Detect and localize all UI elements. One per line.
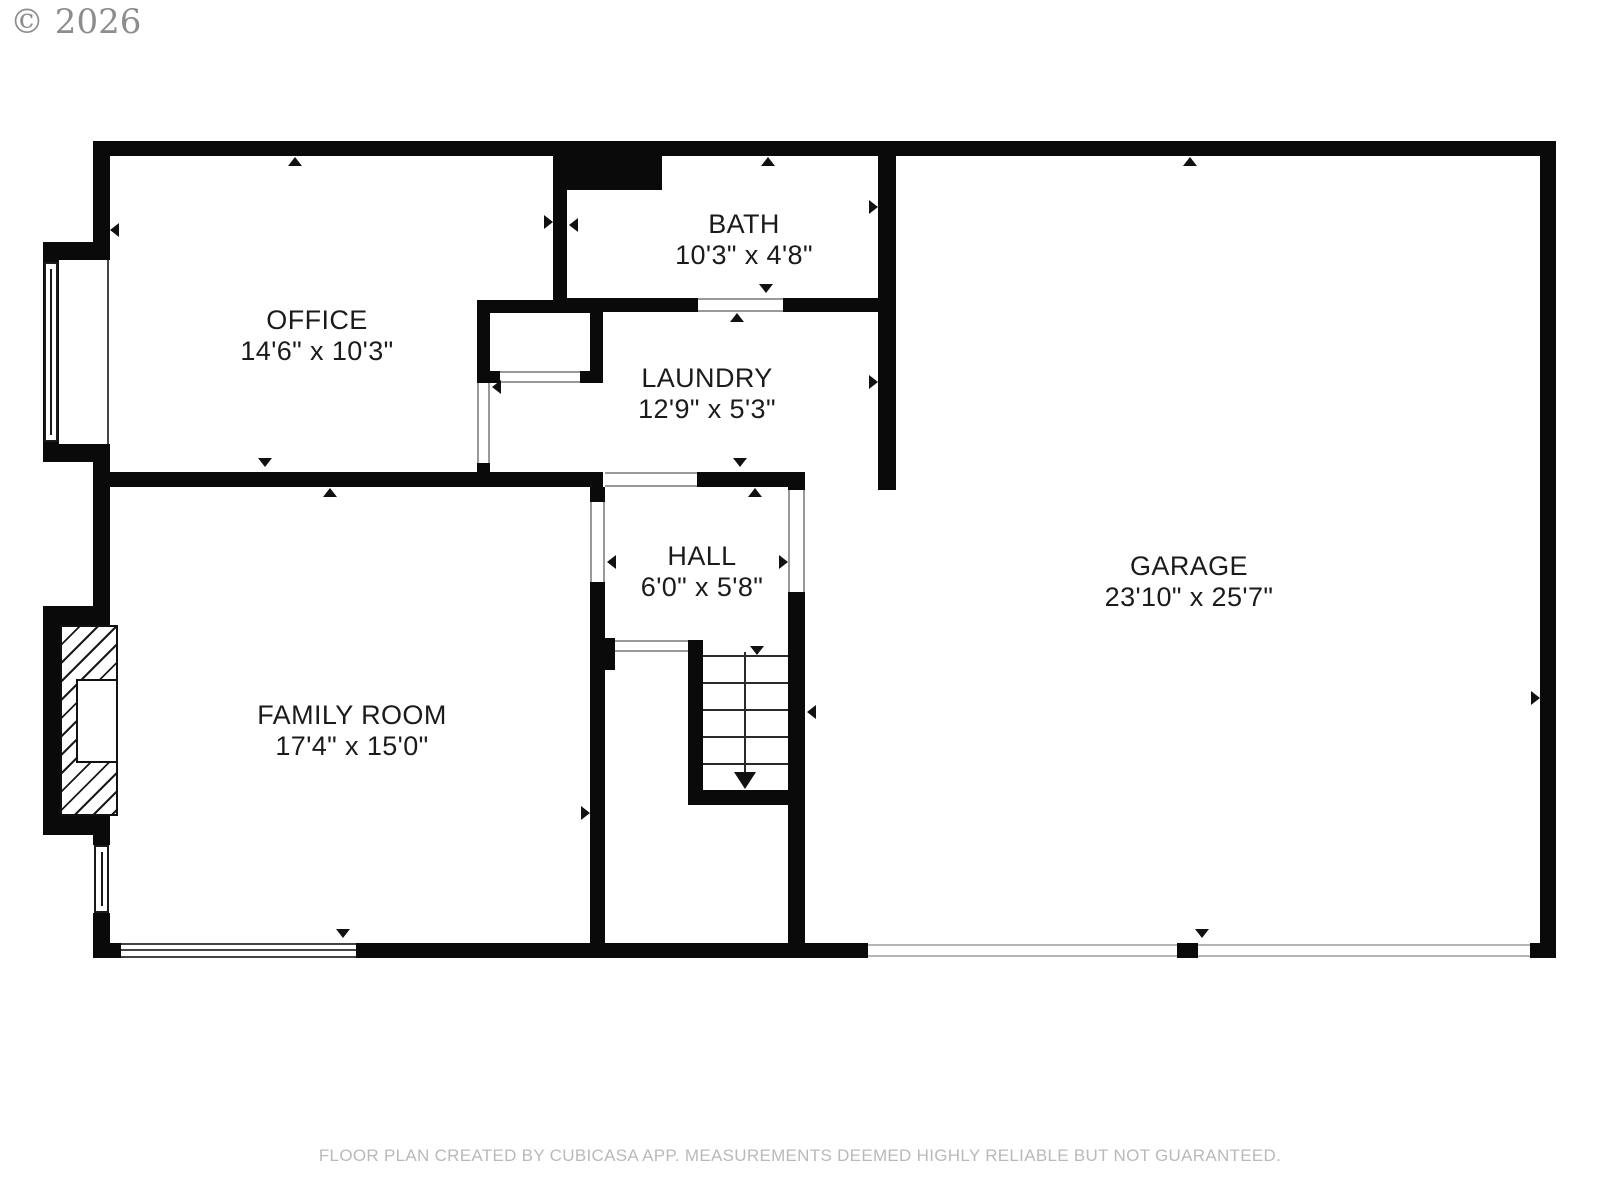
window-cap <box>112 943 121 958</box>
stair-direction-line <box>744 652 746 776</box>
garage-door-opening <box>868 944 1177 957</box>
garage-door-opening <box>1198 944 1530 957</box>
measure-arrow-bath-left <box>569 218 578 232</box>
measure-arrow-garage-bottom <box>1195 929 1209 938</box>
measure-arrow-office-left <box>110 223 119 237</box>
room-name: BATH <box>675 209 813 240</box>
window-glazing-line <box>50 269 52 435</box>
footer-disclaimer: FLOOR PLAN CREATED BY CUBICASA APP. MEAS… <box>0 1146 1600 1166</box>
measure-arrow-laundry-bottom <box>733 458 747 467</box>
door-familyroom-hall <box>590 502 605 582</box>
room-label-office: OFFICE 14'6" x 10'3" <box>240 305 393 367</box>
wall-garage-left <box>788 592 805 943</box>
room-dimensions: 14'6" x 10'3" <box>240 336 393 367</box>
room-label-garage: GARAGE 23'10" x 25'7" <box>1105 551 1274 613</box>
measure-arrow-familyroom-right <box>581 806 590 820</box>
room-dimensions: 12'9" x 5'3" <box>638 394 776 425</box>
room-dimensions: 6'0" x 5'8" <box>641 572 763 603</box>
wall-outer-top <box>93 141 1556 156</box>
room-dimensions: 17'4" x 15'0" <box>257 731 446 762</box>
closet-door-jamb <box>580 371 603 383</box>
family-room-side-window <box>94 845 109 913</box>
office-bay-window <box>44 262 58 442</box>
room-label-laundry: LAUNDRY 12'9" x 5'3" <box>638 363 776 425</box>
room-name: GARAGE <box>1105 551 1274 582</box>
window-glazing-line <box>101 852 103 906</box>
door-closet <box>500 371 580 383</box>
closet-wall-left <box>477 300 490 371</box>
door-bath-laundry <box>698 298 783 312</box>
measure-arrow-familyroom-top <box>323 488 337 497</box>
measure-arrow-laundry-right <box>869 375 878 389</box>
measure-arrow-office-top <box>288 157 302 166</box>
measure-arrow-familyroom-bottom <box>336 929 350 938</box>
room-label-hall: HALL 6'0" x 5'8" <box>641 541 763 603</box>
wall-outer-bottom <box>1530 943 1556 958</box>
measure-arrow-laundry-top <box>730 313 744 322</box>
wall-hall-garage <box>788 472 805 490</box>
wall-garage-door-post <box>1177 943 1198 958</box>
room-label-family-room: FAMILY ROOM 17'4" x 15'0" <box>257 700 446 762</box>
bay-opening-line <box>107 260 109 444</box>
room-name: FAMILY ROOM <box>257 700 446 731</box>
copyright-text: © 2026 <box>10 2 141 42</box>
closet-wall-right <box>590 313 603 371</box>
window-cap <box>356 943 365 958</box>
measure-arrow-laundry-left <box>492 380 501 394</box>
wall-familyroom-hall <box>590 582 605 943</box>
measure-arrow-stairs-top <box>750 646 764 655</box>
wall-bath-bottom <box>783 298 878 312</box>
measure-arrow-office-right <box>544 215 553 229</box>
measure-arrow-garage-left <box>807 705 816 719</box>
door-office-laundry <box>477 383 490 463</box>
wall-stairs-bottom <box>688 790 805 805</box>
window-glazing-line <box>121 949 356 951</box>
measure-arrow-garage-right <box>1531 691 1540 705</box>
measure-arrow-hall-top <box>748 488 762 497</box>
stair-direction-arrow <box>734 772 756 789</box>
room-label-bath: BATH 10'3" x 4'8" <box>675 209 813 271</box>
measure-arrow-hall-left <box>607 555 616 569</box>
measure-arrow-garage-top <box>1183 157 1197 166</box>
wall-laundry-bottom <box>697 472 788 487</box>
room-dimensions: 23'10" x 25'7" <box>1105 582 1274 613</box>
wall-familyroom-hall <box>590 487 605 502</box>
opening-hall-bottom <box>615 640 688 652</box>
wall-outer-left <box>93 913 110 958</box>
room-name: HALL <box>641 541 763 572</box>
measure-arrow-bath-right <box>869 200 878 214</box>
wall-laundry-garage <box>878 156 896 490</box>
wall-hall-bottom-post <box>590 638 615 670</box>
wall-outer-right <box>1540 141 1556 958</box>
wall-outer-left <box>93 141 110 243</box>
floor-plan: © 2026 <box>0 0 1600 1200</box>
closet-wall-top <box>477 300 603 313</box>
measure-arrow-hall-right <box>779 555 788 569</box>
chimney-chase <box>553 155 662 190</box>
room-dimensions: 10'3" x 4'8" <box>675 240 813 271</box>
measure-arrow-bath-bottom <box>759 284 773 293</box>
room-name: OFFICE <box>240 305 393 336</box>
measure-arrow-bath-top <box>761 157 775 166</box>
wall-office-bottom <box>93 472 603 487</box>
wall-outer-left <box>93 835 110 845</box>
fireplace-bay-wall <box>43 606 60 835</box>
fireplace-firebox <box>76 679 118 763</box>
room-name: LAUNDRY <box>638 363 776 394</box>
opening-laundry-hall <box>605 472 697 487</box>
wall-outer-bottom <box>365 943 868 958</box>
measure-arrow-office-bottom <box>258 458 272 467</box>
door-hall-garage <box>788 490 805 592</box>
wall-stairs-left <box>688 640 703 803</box>
